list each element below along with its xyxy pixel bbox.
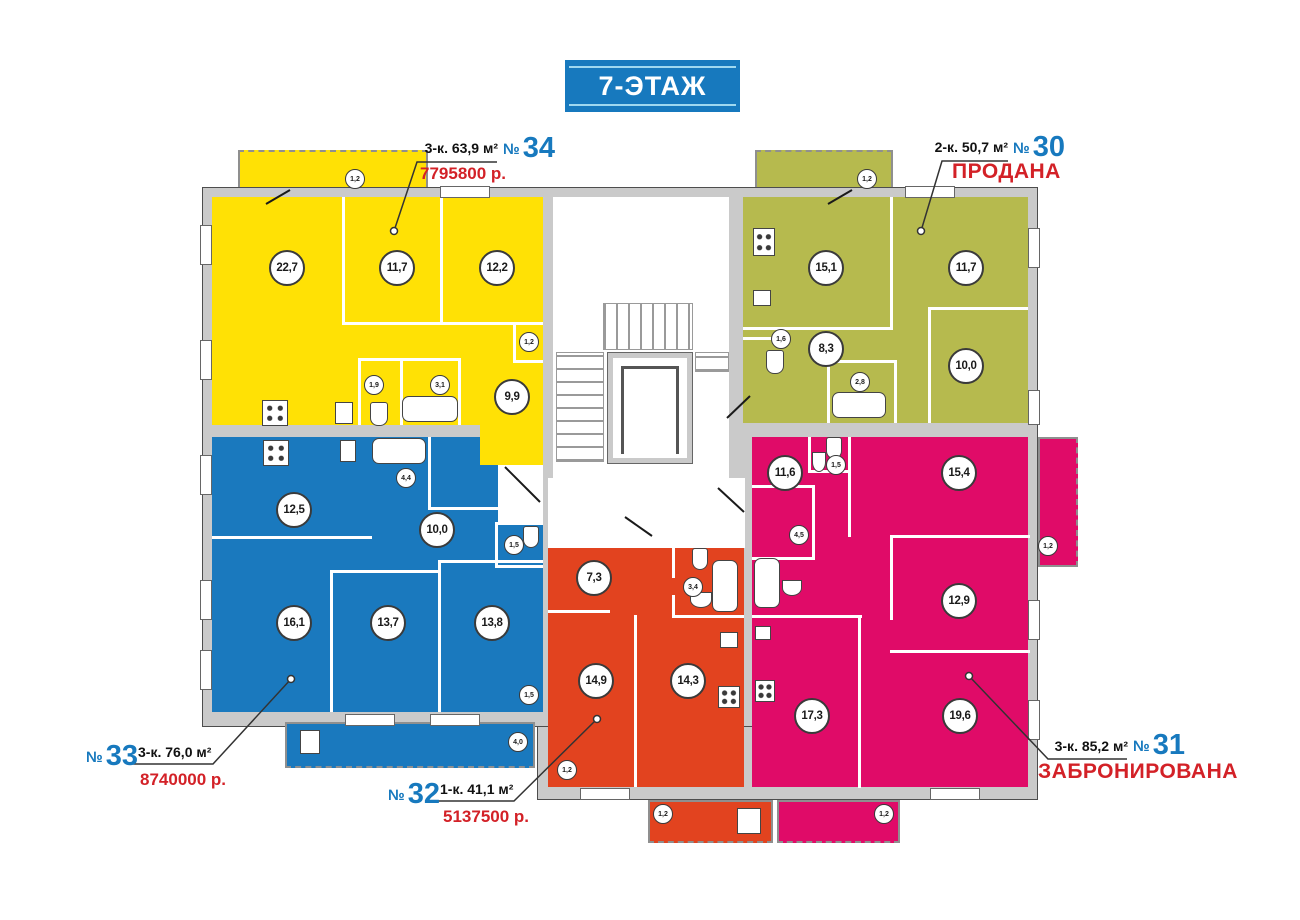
room-area-badge: 4,4: [396, 468, 416, 488]
wall: [513, 322, 516, 362]
wall: [808, 437, 811, 472]
wall: [438, 560, 441, 712]
room-area-badge: 1,5: [826, 455, 846, 475]
room-area-badge: 10,0: [419, 512, 455, 548]
bathtub-icon: [712, 560, 738, 612]
room-area-badge: 15,4: [941, 455, 977, 491]
apartment-34-spec: 3-к. 63,9 м²: [398, 140, 498, 156]
wall: [752, 615, 862, 618]
window: [200, 455, 212, 495]
room-area-badge: 9,9: [494, 379, 530, 415]
apartment-32-price: 5137500 р.: [443, 807, 529, 827]
balcony-area-badge: 1,2: [345, 169, 365, 189]
banner-stripe: [569, 104, 736, 106]
wall: [438, 560, 543, 563]
wall: [330, 570, 333, 712]
room-area-badge: 7,3: [576, 560, 612, 596]
number-sign: №: [1013, 140, 1030, 157]
wall: [634, 615, 637, 787]
apartment-33-balcony: [285, 722, 535, 768]
room-area-badge: 12,2: [479, 250, 515, 286]
apartment-30-status: ПРОДАНА: [952, 160, 1061, 184]
apartment-31-number: № 31: [1133, 731, 1185, 760]
room-area-badge: 22,7: [269, 250, 305, 286]
apartment-34-number: № 34: [503, 134, 555, 163]
bathtub-icon: [372, 438, 426, 464]
apartment-30-spec: 2-к. 50,7 м²: [918, 139, 1008, 155]
apartment-33-spec: 3-к. 76,0 м²: [138, 744, 211, 760]
stove-icon: [718, 686, 740, 708]
elevator-cabin-walls: [621, 366, 679, 454]
wall: [212, 536, 372, 539]
room-area-badge: 2,8: [850, 372, 870, 392]
sink-icon: [812, 452, 826, 472]
room-area-badge: 13,7: [370, 605, 406, 641]
wall: [428, 507, 498, 510]
banner-stripe: [569, 66, 736, 68]
room-area-badge: 14,3: [670, 663, 706, 699]
room-area-badge: 1,5: [519, 685, 539, 705]
wall: [928, 307, 1028, 310]
wall: [428, 437, 431, 510]
balcony-area-badge: 1,2: [1038, 536, 1058, 556]
wall: [890, 535, 893, 620]
apartment-34-price: 7795800 р.: [420, 164, 506, 184]
room-area-badge: 3,1: [430, 375, 450, 395]
bathtub-icon: [754, 558, 780, 608]
wall: [890, 650, 1030, 653]
balcony-hatch-icon: [300, 730, 320, 754]
apartment-32-spec: 1-к. 41,1 м²: [440, 781, 513, 797]
wall: [458, 358, 461, 425]
sink-icon: [340, 440, 356, 462]
room-area-badge: 11,7: [948, 250, 984, 286]
wall: [672, 548, 675, 578]
wall: [330, 570, 440, 573]
room-area-badge: 14,9: [578, 663, 614, 699]
room-area-badge: 3,4: [683, 577, 703, 597]
sink-icon: [782, 580, 802, 596]
window: [430, 714, 480, 726]
toilet-icon: [370, 402, 388, 426]
wall: [858, 618, 861, 788]
window: [1028, 390, 1040, 425]
room-area-badge: 12,5: [276, 492, 312, 528]
window: [1028, 700, 1040, 740]
wall: [890, 197, 893, 327]
toilet-icon: [692, 548, 708, 570]
room-area-badge: 4,5: [789, 525, 809, 545]
window: [200, 580, 212, 620]
wall: [548, 610, 610, 613]
wall: [894, 360, 897, 423]
sink-icon: [753, 290, 771, 306]
sink-icon: [335, 402, 353, 424]
room-area-badge: 15,1: [808, 250, 844, 286]
wall: [495, 522, 498, 567]
apartment-32-number: № 32: [388, 780, 440, 809]
room-area-badge: 10,0: [948, 348, 984, 384]
wall: [358, 358, 461, 361]
wall: [495, 565, 543, 568]
floor-title-banner: 7-ЭТАЖ: [565, 60, 740, 112]
number-sign: №: [503, 141, 520, 158]
apartment-30-shape[interactable]: [743, 197, 1028, 423]
wall: [342, 197, 345, 325]
room-area-badge: 1,2: [557, 760, 577, 780]
wall: [513, 360, 543, 363]
window: [905, 186, 955, 198]
wall: [827, 360, 830, 423]
room-area-badge: 1,6: [771, 329, 791, 349]
floor-title: 7-ЭТАЖ: [599, 71, 707, 102]
corridor-area: [548, 478, 745, 548]
apartment-33-shape[interactable]: [212, 437, 543, 712]
wall: [890, 535, 1030, 538]
room-area-badge: 13,8: [474, 605, 510, 641]
balcony-area-badge: 1,2: [653, 804, 673, 824]
number-sign: №: [86, 749, 103, 766]
window: [440, 186, 490, 198]
window: [200, 225, 212, 265]
stove-icon: [262, 400, 288, 426]
number-sign: №: [388, 787, 405, 804]
wall: [672, 615, 744, 618]
bathtub-icon: [832, 392, 886, 418]
wall: [440, 197, 443, 325]
sink-icon: [755, 626, 771, 640]
balcony-area-badge: 1,2: [857, 169, 877, 189]
room-area-badge: 17,3: [794, 698, 830, 734]
bathtub-icon: [402, 396, 458, 422]
window: [200, 650, 212, 690]
stove-icon: [263, 440, 289, 466]
stairs-left-flight: [556, 352, 604, 462]
apartment-33-number: № 33: [86, 742, 138, 771]
stairs-landing-lines: [695, 352, 729, 372]
room-area-badge: 1,5: [504, 535, 524, 555]
window: [1028, 600, 1040, 640]
stove-icon: [755, 680, 775, 702]
floor-plan-canvas: 22,7 11,7 12,2 1,2 1,9 3,1 9,9 1,2 15,1 …: [0, 0, 1300, 920]
window: [580, 788, 630, 800]
wall: [358, 358, 361, 425]
apartment-34-shape-ext[interactable]: [480, 425, 543, 465]
apartment-31-status: ЗАБРОНИРОВАНА: [1038, 760, 1238, 784]
stairs-upper-flight: [603, 303, 693, 350]
wall: [848, 437, 851, 537]
apartment-30-number: № 30: [1013, 133, 1065, 162]
balcony-area-badge: 1,2: [874, 804, 894, 824]
window: [1028, 228, 1040, 268]
toilet-icon: [523, 526, 539, 548]
room-area-badge: 1,2: [519, 332, 539, 352]
window: [930, 788, 980, 800]
room-area-badge: 11,6: [767, 455, 803, 491]
apartment-33-price: 8740000 р.: [140, 770, 226, 790]
number-sign: №: [1133, 738, 1150, 755]
window: [345, 714, 395, 726]
wall: [495, 522, 543, 525]
sink-icon: [720, 632, 738, 648]
wall: [743, 327, 893, 330]
room-area-badge: 11,7: [379, 250, 415, 286]
room-area-badge: 16,1: [276, 605, 312, 641]
window: [200, 340, 212, 380]
wall: [928, 307, 931, 423]
room-area-badge: 12,9: [941, 583, 977, 619]
room-area-badge: 1,9: [364, 375, 384, 395]
wall: [812, 485, 815, 560]
room-area-badge: 8,3: [808, 331, 844, 367]
room-area-badge: 19,6: [942, 698, 978, 734]
balcony-hatch-icon: [737, 808, 761, 834]
toilet-icon: [766, 350, 784, 374]
apartment-31-spec: 3-к. 85,2 м²: [1048, 738, 1128, 754]
stove-icon: [753, 228, 775, 256]
balcony-area-badge: 4,0: [508, 732, 528, 752]
